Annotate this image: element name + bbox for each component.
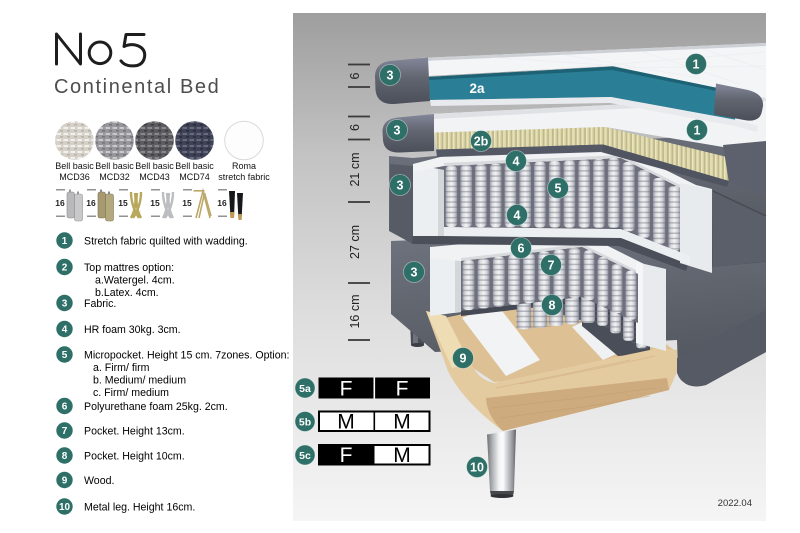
svg-text:Polyurethane foam 25kg. 2cm.: Polyurethane foam 25kg. 2cm. — [84, 401, 228, 413]
svg-text:5a: 5a — [299, 383, 311, 395]
svg-text:16: 16 — [217, 198, 227, 208]
svg-text:3: 3 — [62, 299, 68, 310]
svg-text:15: 15 — [150, 198, 160, 208]
svg-text:stretch fabric: stretch fabric — [218, 172, 270, 182]
svg-text:3: 3 — [387, 69, 394, 83]
svg-text:4: 4 — [513, 155, 520, 169]
svg-text:M: M — [393, 444, 411, 467]
svg-text:9: 9 — [460, 352, 467, 366]
svg-text:9: 9 — [62, 476, 68, 487]
svg-text:HR foam 30kg. 3cm.: HR foam 30kg. 3cm. — [84, 324, 181, 336]
svg-text:4: 4 — [514, 209, 521, 223]
svg-text:F: F — [340, 444, 353, 467]
svg-text:1: 1 — [693, 58, 700, 72]
svg-text:Metal leg. Height 16cm.: Metal leg. Height 16cm. — [84, 501, 195, 513]
svg-text:Stretch fabric quilted with wa: Stretch fabric quilted with wadding. — [84, 235, 248, 247]
svg-text:Bell basic: Bell basic — [95, 161, 134, 171]
svg-text:16: 16 — [55, 198, 65, 208]
svg-text:Bell basic: Bell basic — [175, 161, 214, 171]
svg-text:16: 16 — [86, 198, 96, 208]
svg-text:Continental Bed: Continental Bed — [54, 76, 220, 98]
svg-text:Bell basic: Bell basic — [55, 161, 94, 171]
svg-text:MCD32: MCD32 — [99, 172, 130, 182]
svg-text:2022.04: 2022.04 — [718, 498, 752, 509]
svg-text:8: 8 — [549, 299, 556, 313]
svg-text:10: 10 — [470, 461, 484, 475]
svg-text:Wood.: Wood. — [84, 475, 114, 487]
svg-text:M: M — [337, 411, 355, 434]
svg-text:Pocket. Height 10cm.: Pocket. Height 10cm. — [84, 450, 185, 462]
svg-text:b. Medium/ medium: b. Medium/ medium — [93, 374, 186, 386]
svg-text:15: 15 — [182, 198, 192, 208]
svg-text:Top mattres option:: Top mattres option: — [84, 262, 174, 274]
svg-text:8: 8 — [62, 451, 68, 462]
svg-text:6: 6 — [518, 242, 525, 256]
svg-text:27 cm: 27 cm — [348, 225, 362, 259]
svg-text:1: 1 — [694, 124, 701, 138]
svg-text:6: 6 — [62, 402, 68, 413]
svg-text:5: 5 — [62, 350, 68, 361]
svg-text:15: 15 — [118, 198, 128, 208]
svg-text:Roma: Roma — [232, 161, 256, 171]
svg-text:7: 7 — [62, 426, 68, 437]
svg-text:5c: 5c — [299, 450, 311, 462]
svg-text:7: 7 — [548, 259, 555, 273]
svg-text:MCD74: MCD74 — [179, 172, 210, 182]
svg-text:6: 6 — [348, 124, 362, 131]
svg-text:F: F — [340, 378, 353, 401]
svg-text:3: 3 — [411, 266, 418, 280]
svg-text:M: M — [393, 411, 411, 434]
svg-text:MCD43: MCD43 — [139, 172, 170, 182]
svg-text:Bell basic: Bell basic — [135, 161, 174, 171]
svg-text:2b: 2b — [474, 135, 489, 149]
svg-text:a.Watergel. 4cm.: a.Watergel. 4cm. — [95, 274, 175, 286]
svg-text:3: 3 — [394, 124, 401, 138]
svg-text:3: 3 — [397, 179, 404, 193]
svg-text:Fabric.: Fabric. — [84, 298, 116, 310]
svg-text:6: 6 — [348, 72, 362, 79]
svg-text:c. Firm/ medium: c. Firm/ medium — [93, 387, 169, 399]
svg-text:1: 1 — [62, 236, 68, 247]
svg-text:10: 10 — [59, 502, 71, 513]
svg-text:F: F — [396, 378, 409, 401]
svg-text:21 cm: 21 cm — [348, 152, 362, 186]
svg-text:a. Firm/ firm: a. Firm/ firm — [93, 362, 150, 374]
svg-text:MCD36: MCD36 — [59, 172, 90, 182]
svg-text:16 cm: 16 cm — [348, 294, 362, 328]
svg-text:2a: 2a — [469, 81, 485, 96]
svg-text:5b: 5b — [299, 416, 311, 428]
svg-text:2: 2 — [62, 263, 68, 274]
svg-text:5: 5 — [555, 182, 562, 196]
svg-text:Micropocket. Height 15 cm. 7zo: Micropocket. Height 15 cm. 7zones. Optio… — [84, 349, 290, 361]
svg-text:Pocket. Height 13cm.: Pocket. Height 13cm. — [84, 425, 185, 437]
svg-text:4: 4 — [62, 325, 68, 336]
